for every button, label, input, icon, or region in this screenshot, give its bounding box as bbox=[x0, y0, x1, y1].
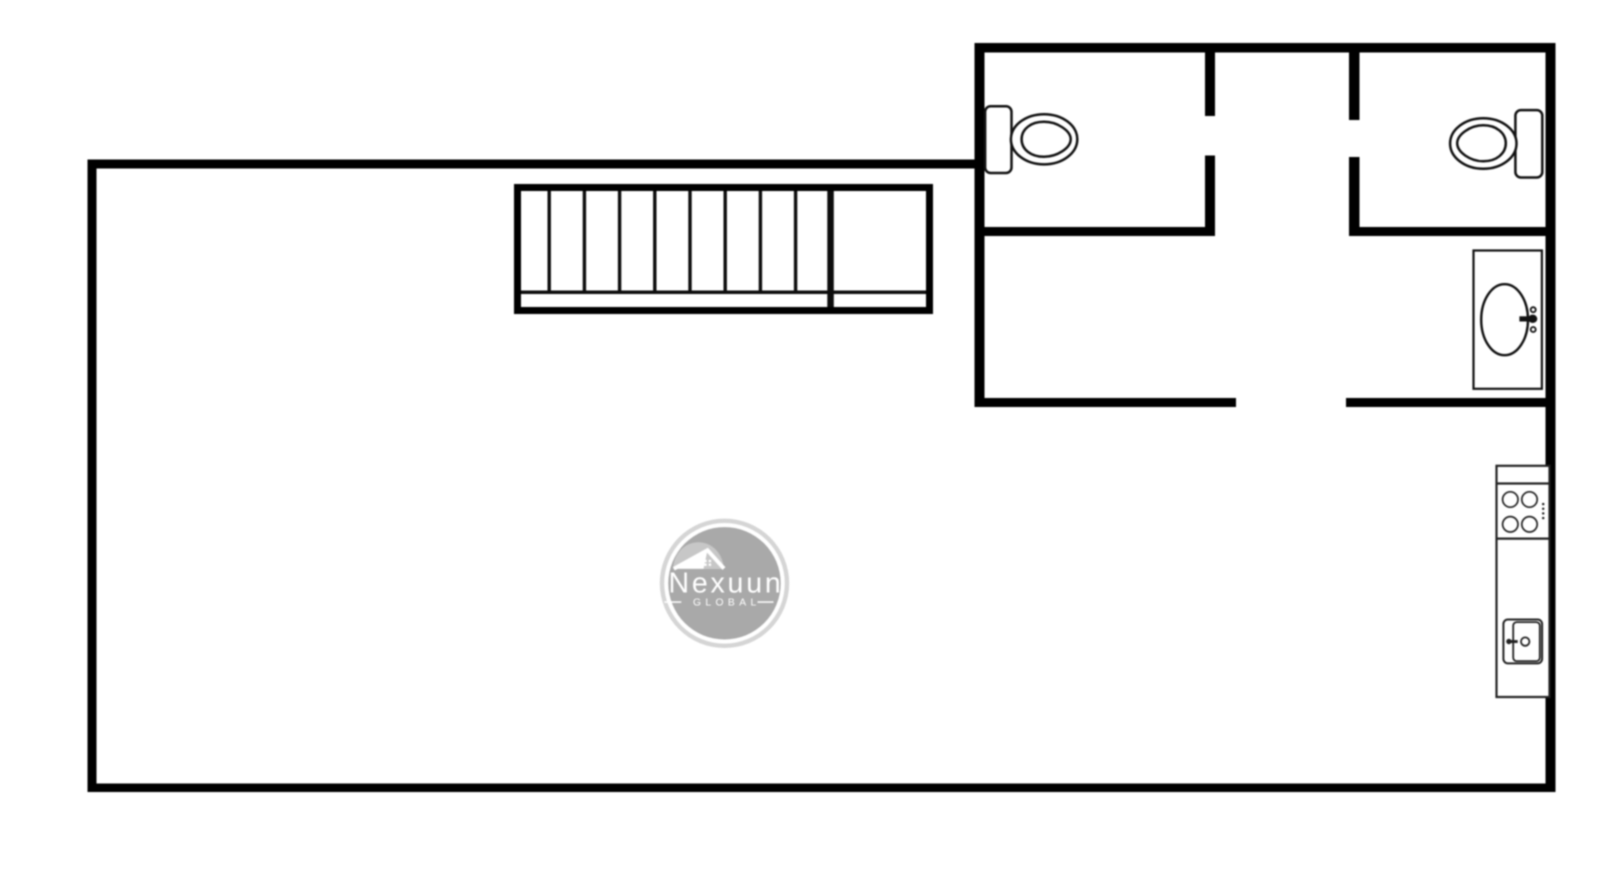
svg-text:Nexuun: Nexuun bbox=[668, 568, 783, 600]
svg-text:GLOBAL: GLOBAL bbox=[693, 598, 761, 609]
